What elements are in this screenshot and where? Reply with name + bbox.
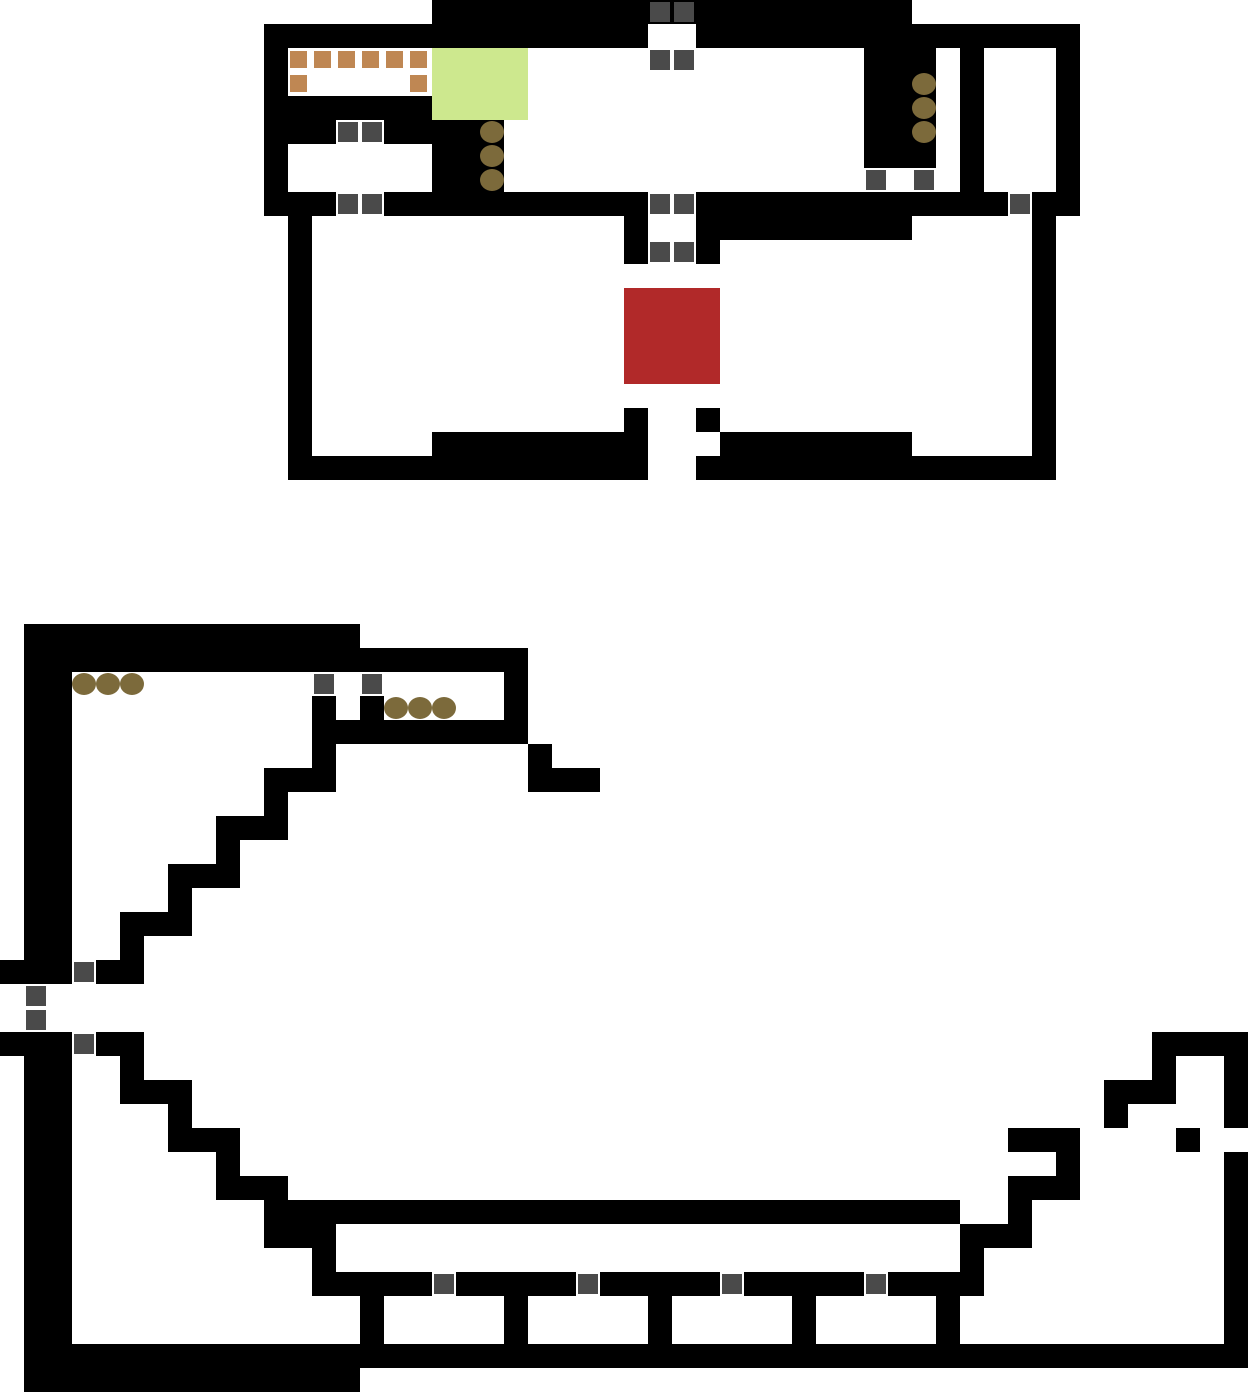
wall-segment [1224, 1080, 1248, 1104]
wall-segment [1224, 1176, 1248, 1200]
wall-segment [24, 912, 72, 936]
wall-segment [864, 144, 936, 168]
door-icon[interactable] [866, 1274, 886, 1294]
boulder-icon[interactable] [120, 673, 144, 695]
crate-icon[interactable] [338, 51, 355, 68]
crate-icon[interactable] [362, 51, 379, 68]
wall-segment [24, 672, 72, 696]
wall-segment [1152, 1056, 1176, 1080]
wall-segment [264, 144, 288, 168]
door-icon[interactable] [1010, 194, 1030, 214]
wall-segment [288, 456, 648, 480]
wall-segment [792, 1320, 816, 1344]
green-zone [432, 48, 528, 120]
wall-segment [1056, 168, 1080, 192]
crate-icon[interactable] [290, 51, 307, 68]
boulder-icon[interactable] [96, 673, 120, 695]
wall-segment [0, 1032, 72, 1056]
wall-segment [1224, 1248, 1248, 1272]
wall-segment [1056, 144, 1080, 168]
wall-segment [1056, 72, 1080, 96]
wall-segment [288, 240, 312, 264]
wall-segment [1224, 1152, 1248, 1176]
door-icon[interactable] [722, 1274, 742, 1294]
door-icon[interactable] [362, 122, 382, 142]
wall-segment [24, 1296, 72, 1320]
wall-segment [24, 840, 72, 864]
door-icon[interactable] [674, 50, 694, 70]
wall-segment [24, 864, 72, 888]
door-icon[interactable] [650, 50, 670, 70]
wall-segment [1224, 1320, 1248, 1344]
door-icon[interactable] [914, 170, 934, 190]
wall-segment [960, 48, 984, 72]
wall-segment [120, 1080, 192, 1104]
door-icon[interactable] [26, 986, 46, 1006]
wall-segment [864, 48, 936, 72]
wall-segment [24, 1176, 72, 1200]
wall-segment [288, 408, 312, 432]
wall-segment [312, 1248, 336, 1272]
door-icon[interactable] [674, 194, 694, 214]
wall-segment [888, 1272, 984, 1296]
wall-segment [936, 1320, 960, 1344]
door-icon[interactable] [338, 122, 358, 142]
wall-segment [360, 1296, 384, 1320]
wall-segment [624, 408, 648, 432]
wall-segment [24, 1128, 72, 1152]
wall-segment [168, 888, 192, 912]
door-icon[interactable] [338, 194, 358, 214]
wall-segment [936, 1296, 960, 1320]
boulder-icon[interactable] [480, 121, 504, 143]
wall-segment [960, 96, 984, 120]
wall-segment [432, 432, 648, 456]
wall-segment [960, 144, 984, 168]
wall-segment [1032, 192, 1080, 216]
wall-segment [504, 1296, 528, 1320]
wall-segment [696, 408, 720, 432]
wall-segment [120, 936, 144, 960]
wall-segment [648, 1296, 672, 1320]
wall-segment [456, 1272, 576, 1296]
wall-segment [960, 168, 984, 192]
wall-segment [960, 1224, 1032, 1248]
wall-segment [288, 312, 312, 336]
wall-segment [384, 192, 648, 216]
wall-segment [264, 24, 648, 48]
wall-segment [1008, 1128, 1080, 1152]
wall-segment [600, 1272, 720, 1296]
door-icon[interactable] [26, 1010, 46, 1030]
wall-segment [24, 816, 72, 840]
wall-segment [1152, 1032, 1248, 1056]
wall-segment [1224, 1272, 1248, 1296]
wall-segment [1032, 312, 1056, 336]
wall-segment [312, 720, 528, 744]
wall-segment [504, 1320, 528, 1344]
wall-segment [24, 1104, 72, 1128]
wall-segment [1032, 408, 1056, 432]
wall-segment [960, 120, 984, 144]
wall-segment [504, 696, 528, 720]
door-icon[interactable] [578, 1274, 598, 1294]
wall-segment [24, 1224, 72, 1248]
wall-segment [1032, 432, 1056, 456]
door-icon[interactable] [362, 194, 382, 214]
wall-segment [1224, 1056, 1248, 1080]
wall-segment [264, 120, 336, 144]
door-icon[interactable] [674, 242, 694, 262]
wall-segment [264, 792, 288, 816]
wall-segment [624, 240, 648, 264]
wall-segment [24, 648, 528, 672]
wall-segment [1224, 1224, 1248, 1248]
wall-segment [1056, 120, 1080, 144]
wall-segment [168, 1104, 192, 1128]
wall-segment [960, 1248, 984, 1272]
wall-segment [1104, 1080, 1176, 1104]
wall-segment [264, 1224, 336, 1248]
wall-segment [1104, 1104, 1128, 1128]
wall-segment [1224, 1104, 1248, 1128]
wall-segment [1032, 384, 1056, 408]
wall-segment [24, 1080, 72, 1104]
crate-icon[interactable] [386, 51, 403, 68]
crate-icon[interactable] [314, 51, 331, 68]
boulder-icon[interactable] [480, 145, 504, 167]
wall-segment [24, 936, 72, 960]
wall-segment [960, 72, 984, 96]
wall-segment [696, 192, 1008, 216]
wall-segment [1032, 336, 1056, 360]
crate-icon[interactable] [410, 75, 427, 92]
door-icon[interactable] [650, 242, 670, 262]
wall-segment [24, 720, 72, 744]
door-icon[interactable] [74, 962, 94, 982]
wall-segment [168, 864, 240, 888]
wall-segment [24, 792, 72, 816]
wall-segment [288, 288, 312, 312]
door-icon[interactable] [650, 2, 670, 22]
wall-segment [24, 1200, 72, 1224]
door-icon[interactable] [650, 194, 670, 214]
wall-segment [24, 1248, 72, 1272]
wall-segment [1032, 360, 1056, 384]
wall-segment [1056, 48, 1080, 72]
wall-segment [216, 816, 288, 840]
wall-segment [360, 1320, 384, 1344]
wall-segment [1008, 1200, 1032, 1224]
door-icon[interactable] [674, 2, 694, 22]
door-icon[interactable] [434, 1274, 454, 1294]
wall-segment [1032, 216, 1056, 240]
wall-segment [648, 1320, 672, 1344]
wall-segment [24, 744, 72, 768]
wall-segment [528, 768, 600, 792]
wall-segment [24, 1320, 72, 1344]
wall-segment [288, 216, 312, 240]
wall-segment [1056, 1152, 1080, 1176]
wall-segment [1008, 1176, 1080, 1200]
wall-segment [24, 696, 72, 720]
wall-segment [288, 336, 312, 360]
wall-segment [1056, 96, 1080, 120]
wall-segment [696, 216, 912, 240]
wall-segment [24, 888, 72, 912]
wall-segment [216, 1152, 240, 1176]
wall-segment [24, 1056, 72, 1080]
wall-segment [264, 1200, 960, 1224]
wall-segment [288, 384, 312, 408]
wall-segment [528, 744, 552, 768]
boulder-icon[interactable] [432, 697, 456, 719]
wall-segment [1032, 288, 1056, 312]
wall-segment [120, 1056, 144, 1080]
wall-segment [24, 624, 360, 648]
wall-segment [744, 1272, 864, 1296]
dungeon-map[interactable] [0, 0, 1249, 1393]
wall-segment [216, 840, 240, 864]
wall-segment [168, 1128, 240, 1152]
wall-segment [312, 744, 336, 768]
wall-segment [432, 0, 912, 24]
wall-segment [1224, 1200, 1248, 1224]
wall-segment [216, 1176, 288, 1200]
boulder-icon[interactable] [408, 697, 432, 719]
wall-segment [720, 432, 912, 456]
wall-segment [288, 360, 312, 384]
wall-segment [624, 216, 648, 240]
door-icon[interactable] [314, 674, 334, 694]
wall-segment [696, 24, 1080, 48]
wall-segment [264, 96, 432, 120]
wall-segment [1032, 264, 1056, 288]
wall-segment [1176, 1128, 1200, 1152]
wall-segment [264, 768, 336, 792]
wall-segment [264, 168, 288, 192]
wall-segment [264, 48, 288, 72]
wall-segment [24, 1368, 360, 1392]
door-icon[interactable] [74, 1034, 94, 1054]
wall-segment [696, 456, 1056, 480]
door-icon[interactable] [866, 170, 886, 190]
wall-segment [120, 912, 192, 936]
crate-icon[interactable] [410, 51, 427, 68]
wall-segment [696, 240, 720, 264]
wall-segment [264, 192, 336, 216]
boulder-icon[interactable] [912, 73, 936, 95]
door-icon[interactable] [362, 674, 382, 694]
wall-segment [288, 264, 312, 288]
boulder-icon[interactable] [384, 697, 408, 719]
boulder-icon[interactable] [912, 97, 936, 119]
boulder-icon[interactable] [480, 169, 504, 191]
wall-segment [1224, 1296, 1248, 1320]
wall-segment [792, 1296, 816, 1320]
wall-segment [0, 960, 72, 984]
red-zone [624, 288, 720, 384]
wall-segment [24, 1152, 72, 1176]
wall-segment [96, 1032, 144, 1056]
wall-segment [360, 696, 384, 720]
wall-segment [264, 72, 288, 96]
wall-segment [24, 1344, 1248, 1368]
crate-icon[interactable] [290, 75, 307, 92]
wall-segment [312, 1272, 432, 1296]
wall-segment [96, 960, 144, 984]
wall-segment [24, 768, 72, 792]
wall-segment [1032, 240, 1056, 264]
wall-segment [24, 1272, 72, 1296]
boulder-icon[interactable] [72, 673, 96, 695]
wall-segment [504, 672, 528, 696]
wall-segment [312, 696, 336, 720]
boulder-icon[interactable] [912, 121, 936, 143]
wall-segment [288, 432, 312, 456]
